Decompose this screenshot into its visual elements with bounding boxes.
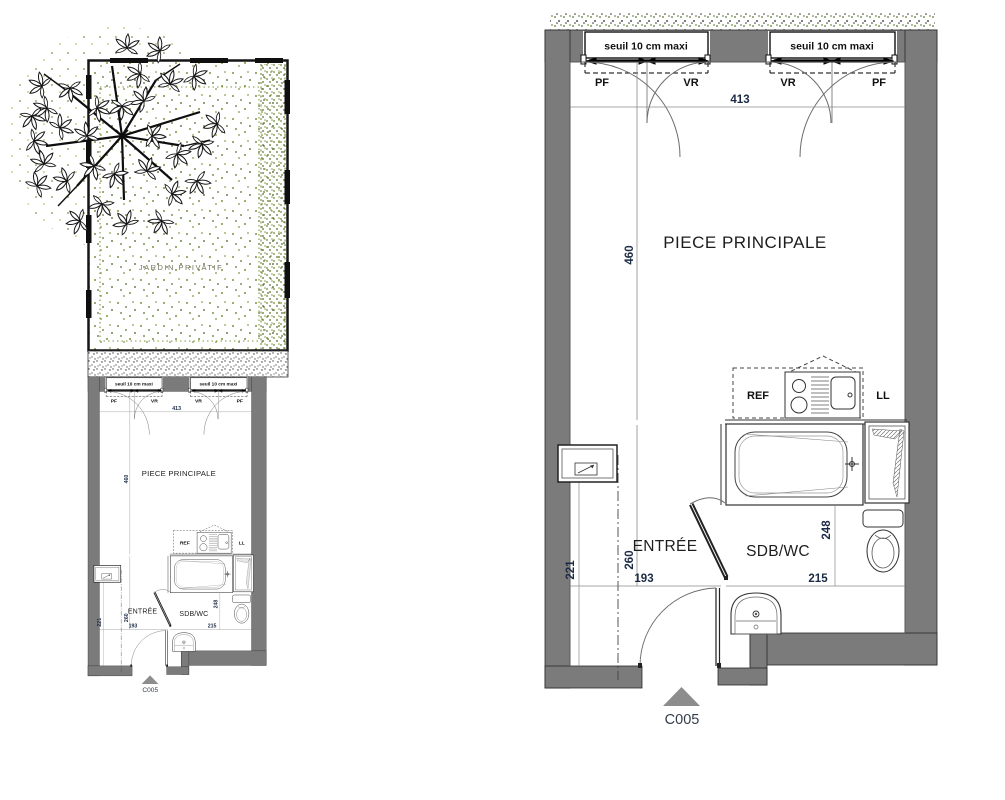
terrace-strip: [88, 351, 288, 377]
planting-band: [550, 13, 935, 30]
right-plan: [545, 13, 937, 728]
garden-label: JARDIN PRIVATIF: [139, 263, 223, 272]
left-plan: JARDIN PRIVATIF: [6, 26, 290, 694]
floor-plan-page: seuil 10 cm maxi seuil 10 cm maxi: [0, 0, 1005, 800]
apartment-large: [545, 30, 937, 728]
floor-plan-canvas: seuil 10 cm maxi seuil 10 cm maxi: [0, 0, 1005, 800]
hedge-band: [261, 64, 285, 349]
apartment-small: [88, 377, 266, 694]
